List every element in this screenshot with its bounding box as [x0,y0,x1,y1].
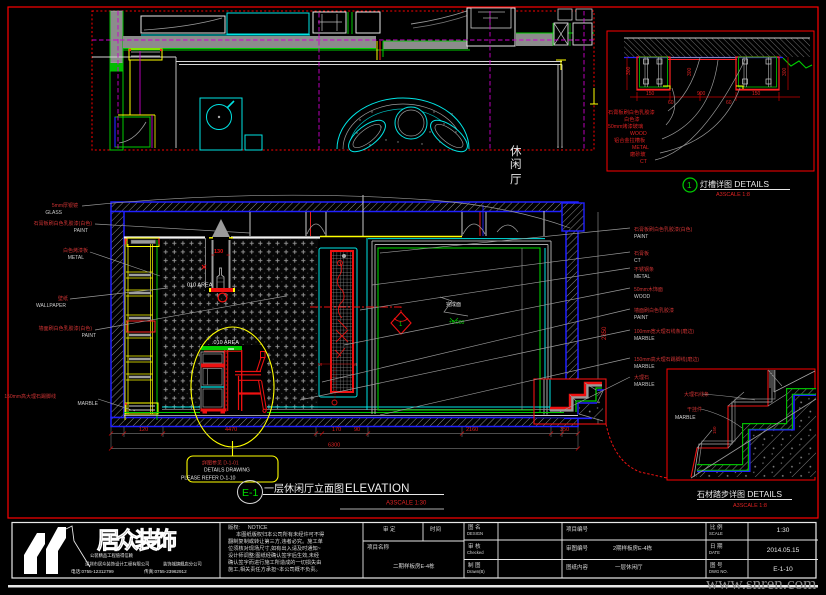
svg-text:时间: 时间 [430,525,441,533]
svg-text:M: M [318,362,322,367]
svg-text:公装精品工程值得信赖: 公装精品工程值得信赖 [90,552,134,559]
svg-text:翻制复制或转让第三方,违者必究。施工单: 翻制复制或转让第三方,违者必究。施工单 [228,537,323,545]
svg-text:METAL: METAL [632,145,649,151]
svg-text:130: 130 [214,249,223,255]
svg-text:白色漆: 白色漆 [624,115,640,123]
svg-text:完成面: 完成面 [446,301,461,308]
svg-text:设计师调整;图纸经确认签字后生效,未经: 设计师调整;图纸经确认签字后生效,未经 [228,551,319,559]
svg-text:2014.05.15: 2014.05.15 [767,547,800,554]
svg-text:MARBLE: MARBLE [675,415,696,421]
svg-text:170: 170 [332,427,341,433]
svg-text:审 核: 审 核 [468,542,481,550]
svg-text:白色烤漆板: 白色烤漆板 [63,247,88,254]
svg-text:石材踏步详图 DETAILS: 石材踏步详图 DETAILS [697,489,782,499]
svg-text:MARBLE: MARBLE [634,382,655,388]
svg-text:墙面刷白色乳胶漆(白色): 墙面刷白色乳胶漆(白色) [39,325,93,332]
svg-text:120: 120 [139,427,148,433]
svg-text:PAINT: PAINT [82,333,96,339]
svg-text:不锈钢条: 不锈钢条 [634,266,654,273]
svg-text:A3SCALE 1:8: A3SCALE 1:8 [716,192,750,198]
svg-text:一层休闲厅立面图ELEVATION: 一层休闲厅立面图ELEVATION [264,482,410,495]
svg-text:WOOD: WOOD [634,294,650,300]
svg-text:300: 300 [687,67,693,76]
svg-text:石膏板刷白色乳胶漆(白色): 石膏板刷白色乳胶漆(白色) [634,226,693,233]
svg-text:CT: CT [640,159,648,165]
svg-text:PAINT: PAINT [74,228,88,234]
svg-text:MARBLE: MARBLE [634,364,655,370]
svg-text:施工,相关责任方承担~本公司概不负责。: 施工,相关责任方承担~本公司概不负责。 [228,565,321,573]
svg-text:DESIGN: DESIGN [467,531,483,536]
svg-text:4470: 4470 [225,427,237,433]
svg-text:PAINT: PAINT [634,315,648,321]
svg-text:50mm木饰面: 50mm木饰面 [634,286,663,293]
svg-text:闲: 闲 [510,157,522,171]
svg-text:6300: 6300 [328,443,340,449]
svg-text:DATE: DATE [709,550,720,555]
svg-text:150mm高大理石踢脚线: 150mm高大理石踢脚线 [4,393,56,400]
svg-text:WOOD: WOOD [630,131,647,137]
svg-text:300: 300 [782,67,788,76]
svg-text:900: 900 [697,91,706,97]
svg-text:石膏板: 石膏板 [634,250,649,257]
svg-text:干挂件: 干挂件 [687,406,702,413]
svg-text:Checked: Checked [467,550,484,555]
svg-text:比 例: 比 例 [710,523,723,531]
svg-text:居众装饰: 居众装饰 [97,527,177,553]
svg-text:MARBLE: MARBLE [77,401,98,407]
svg-text:METAL: METAL [634,274,651,280]
svg-text:位须核对现场尺寸,如有出入请及时通知~: 位须核对现场尺寸,如有出入请及时通知~ [228,544,321,552]
svg-text:SCALE: SCALE [709,531,723,536]
svg-text:MARBLE: MARBLE [634,336,655,342]
svg-text:60: 60 [726,100,732,106]
svg-text:灯槽详图 DETAILS: 灯槽详图 DETAILS [700,179,769,189]
svg-text:GLASS: GLASS [45,210,62,216]
svg-text:5mm厚银镜: 5mm厚银镜 [52,202,78,209]
svg-text:1:30: 1:30 [777,527,790,534]
svg-text:DETAILS DRAWING: DETAILS DRAWING [204,468,250,474]
svg-text:Drawn(B): Drawn(B) [467,569,485,574]
svg-text:METAL: METAL [68,255,85,261]
svg-text:PAINT: PAINT [634,234,648,240]
svg-text:CT: CT [634,258,641,264]
svg-text:日 期: 日 期 [710,543,723,550]
svg-text:.010 AREA: .010 AREA [212,340,239,346]
svg-text:1: 1 [687,181,692,190]
svg-text:2850: 2850 [602,326,608,340]
svg-text:本图纸版权归本公司所有未经许可不得: 本图纸版权归本公司所有未经许可不得 [236,530,324,538]
svg-text:www.snren.com: www.snren.com [706,574,816,593]
svg-text:深圳市居众装饰设计工程有限公司: 深圳市居众装饰设计工程有限公司 [85,561,149,568]
svg-text:90: 90 [354,427,360,433]
svg-text:磨砂玻: 磨砂玻 [630,150,646,158]
svg-text:传真:0755-23962912: 传真:0755-23962912 [144,568,187,575]
svg-text:装饰城旗舰店分公司: 装饰城旗舰店分公司 [163,561,202,568]
svg-text:墙面刷白色乳胶漆: 墙面刷白色乳胶漆 [634,307,674,314]
svg-text:150: 150 [646,91,655,97]
svg-text:150: 150 [712,426,717,434]
svg-text:300: 300 [626,66,632,75]
svg-text:石膏板刷白色乳胶漆: 石膏板刷白色乳胶漆 [608,108,655,116]
svg-text:图 名: 图 名 [468,523,481,531]
svg-text:60: 60 [668,100,674,106]
svg-text:350: 350 [560,427,569,433]
svg-text:铝合金拉槽板: 铝合金拉槽板 [614,136,646,144]
svg-text:150mm高大理石踢脚线(磨边): 150mm高大理石踢脚线(磨边) [634,356,699,363]
svg-text:大理石: 大理石 [634,374,649,381]
svg-text:010 AREA: 010 AREA [187,283,213,289]
svg-text:E-1: E-1 [242,487,259,499]
svg-text:项目编号: 项目编号 [566,525,589,533]
svg-text:确认签字而进行施工所造成的一切损失由: 确认签字而进行施工所造成的一切损失由 [228,558,321,566]
svg-text:100mm宽大理石线条(磨边): 100mm宽大理石线条(磨边) [634,328,694,335]
svg-text:2160: 2160 [466,427,478,433]
svg-text:E-1-10: E-1-10 [773,566,793,573]
svg-text:M: M [353,362,357,367]
svg-text:石膏板刷白色乳胶漆(白色): 石膏板刷白色乳胶漆(白色) [34,220,93,227]
svg-text:壁纸: 壁纸 [58,295,68,302]
svg-text:厅: 厅 [510,174,522,186]
svg-text:版权:NOTICE: 版权:NOTICE [228,523,268,531]
svg-text:制 图: 制 图 [468,561,481,569]
svg-text:一层休闲厅: 一层休闲厅 [615,563,643,571]
svg-text:PLEASE REFER D-1-10: PLEASE REFER D-1-10 [181,476,236,482]
svg-text:二期样板房E-4栋: 二期样板房E-4栋 [393,562,435,570]
svg-text:A3SCALE 1:30: A3SCALE 1:30 [386,501,427,507]
svg-text:A3SCALE 1:8: A3SCALE 1:8 [733,503,767,509]
svg-text:休: 休 [510,145,522,158]
svg-text:WALLPAPER: WALLPAPER [36,303,66,309]
svg-text:审 定: 审 定 [383,525,396,533]
svg-text:±0.000: ±0.000 [449,320,464,326]
svg-text:2期样板房E-4栋: 2期样板房E-4栋 [613,544,653,552]
svg-text:审图编号: 审图编号 [566,544,589,552]
svg-text:150: 150 [752,91,761,97]
svg-text:电话:0755-12312799: 电话:0755-12312799 [71,568,114,575]
svg-text:詳图参见 D-1-01: 詳图参见 D-1-01 [202,460,239,467]
svg-text:项目名称: 项目名称 [367,543,390,551]
svg-text:图纸内容: 图纸内容 [566,563,589,571]
svg-text:图 号: 图 号 [710,561,723,569]
svg-text:50mm烤漆玻璃: 50mm烤漆玻璃 [608,122,643,130]
